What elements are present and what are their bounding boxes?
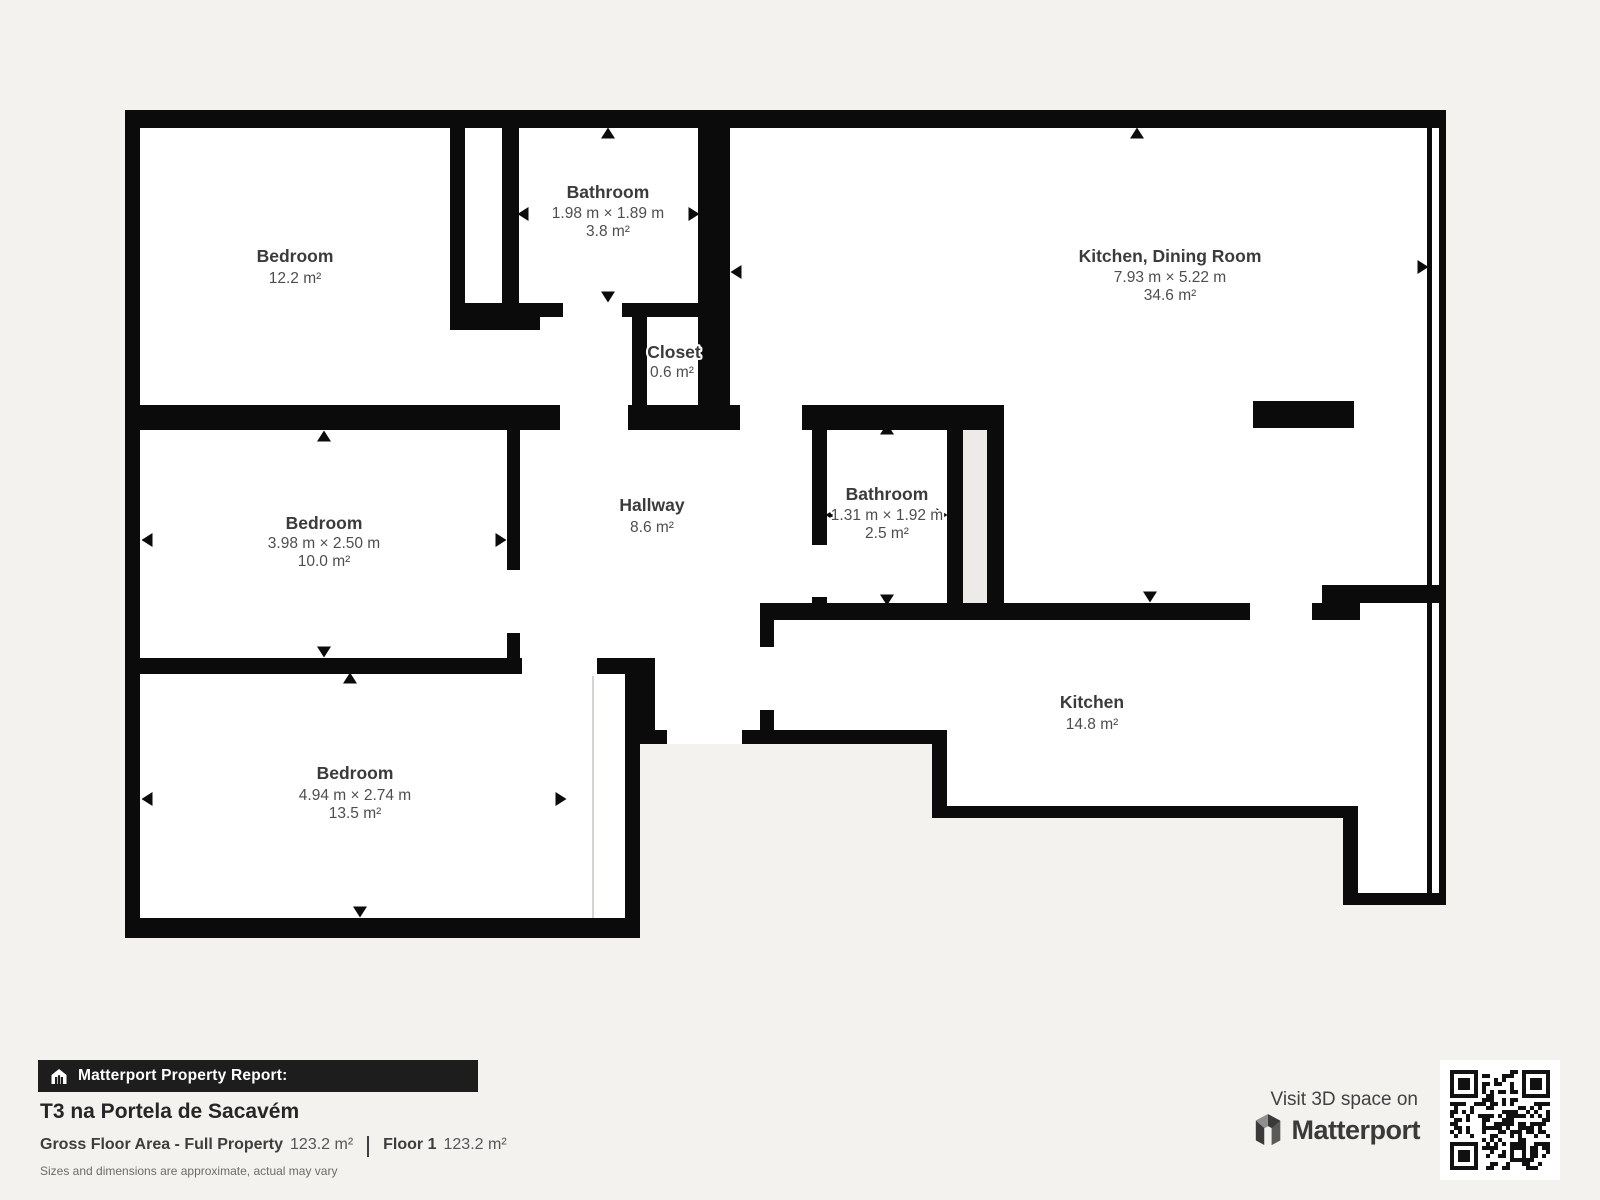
room-label-hallway: Hallway [619, 495, 684, 515]
disclaimer-text: Sizes and dimensions are approximate, ac… [40, 1164, 337, 1178]
floor-value: 123.2 m² [444, 1136, 507, 1154]
room-dims-bathroom-2: 1.31 m × 1.92 m [831, 507, 943, 524]
house-icon [50, 1068, 68, 1085]
room-dims-bedroom-3: 4.94 m × 2.74 m [299, 787, 411, 804]
room-area-bedroom-3: 13.5 m² [329, 805, 382, 822]
room-dims-bathroom-1: 1.98 m × 1.89 m [552, 205, 664, 222]
qr-code [1440, 1060, 1560, 1180]
room-dims-bedroom-2: 3.98 m × 2.50 m [268, 535, 380, 552]
room-area-kitchen: 14.8 m² [1066, 716, 1119, 733]
room-dims-kitchen-dining: 7.93 m × 5.22 m [1114, 269, 1226, 286]
report-badge-label: Matterport Property Report: [78, 1067, 288, 1085]
property-title: T3 na Portela de Sacavém [40, 1100, 299, 1124]
kitchen-counter [1253, 401, 1354, 428]
room-area-closet: 0.6 m² [650, 364, 694, 381]
room-area-bedroom-1: 12.2 m² [269, 270, 322, 287]
room-label-bathroom-2: Bathroom [846, 484, 929, 504]
report-badge-bar: Matterport Property Report: [38, 1060, 478, 1092]
floor-area-row: Gross Floor Area - Full Property 123.2 m… [40, 1136, 507, 1157]
room-label-kitchen-dining: Kitchen, Dining Room [1079, 246, 1262, 266]
room-label-bedroom-2: Bedroom [286, 513, 363, 533]
room-area-hallway: 8.6 m² [630, 519, 674, 536]
matterport-logo-icon [1253, 1112, 1283, 1148]
room-label-closet: Closet [647, 342, 701, 362]
floor-plan: Bedroom 12.2 m² Bathroom 1.98 m × 1.89 m… [0, 0, 1600, 1200]
floor-label: Floor 1 [383, 1136, 436, 1154]
matterport-brand-name: Matterport [1292, 1115, 1421, 1146]
room-area-bathroom-2: 2.5 m² [865, 525, 909, 542]
room-label-bedroom-3: Bedroom [317, 763, 394, 783]
room-area-kitchen-dining: 34.6 m² [1144, 287, 1197, 304]
divider [367, 1136, 369, 1157]
matterport-brand: Matterport [1253, 1112, 1421, 1148]
shaft-strip [963, 423, 987, 603]
room-label-bathroom-1: Bathroom [567, 182, 650, 202]
room-label-bedroom-1: Bedroom [257, 246, 334, 266]
room-area-bathroom-1: 3.8 m² [586, 223, 630, 240]
gfa-value: 123.2 m² [290, 1136, 353, 1154]
room-area-bedroom-2: 10.0 m² [298, 553, 351, 570]
gfa-label: Gross Floor Area - Full Property [40, 1136, 283, 1154]
room-label-kitchen: Kitchen [1060, 692, 1124, 712]
visit-3d-text: Visit 3D space on [1270, 1089, 1418, 1111]
